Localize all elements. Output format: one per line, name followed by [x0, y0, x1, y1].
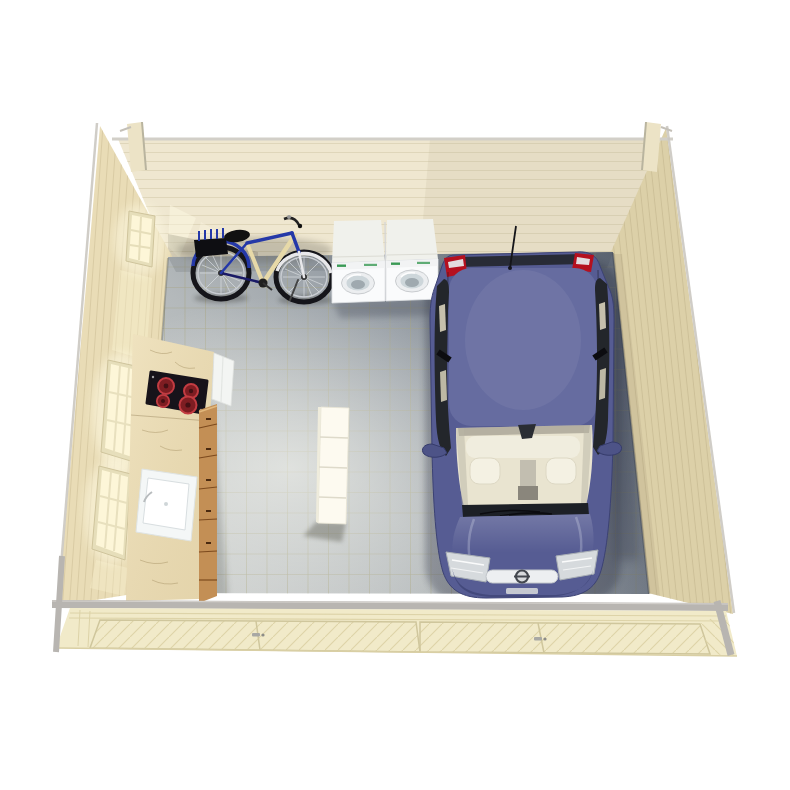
bike-rack	[194, 228, 228, 257]
white-appliance	[212, 353, 234, 406]
washing-machine-right	[386, 219, 438, 301]
laundry-machines	[332, 219, 438, 303]
door-handle-left[interactable]	[252, 633, 265, 637]
garage-door-right	[420, 622, 710, 654]
scene-svg	[0, 0, 790, 790]
car-seat-right	[546, 458, 576, 484]
window-front	[92, 466, 131, 560]
car-windshield	[456, 424, 593, 507]
car-seat-left	[470, 458, 500, 484]
washer-display	[337, 265, 346, 267]
garage-interior-render	[0, 0, 790, 790]
car-grille	[486, 570, 558, 583]
shelf-unit	[316, 407, 349, 524]
car-rear-bench	[466, 436, 580, 458]
car-license-plate	[506, 588, 538, 594]
drain	[164, 502, 168, 506]
car-roof-sheen	[465, 270, 581, 410]
drawer-unit	[199, 404, 217, 603]
washing-machine-left	[332, 220, 385, 303]
garage-door-left	[90, 620, 420, 652]
sink	[136, 469, 197, 541]
window-top	[126, 211, 155, 267]
door-handle-right[interactable]	[534, 637, 547, 641]
car	[422, 226, 621, 598]
